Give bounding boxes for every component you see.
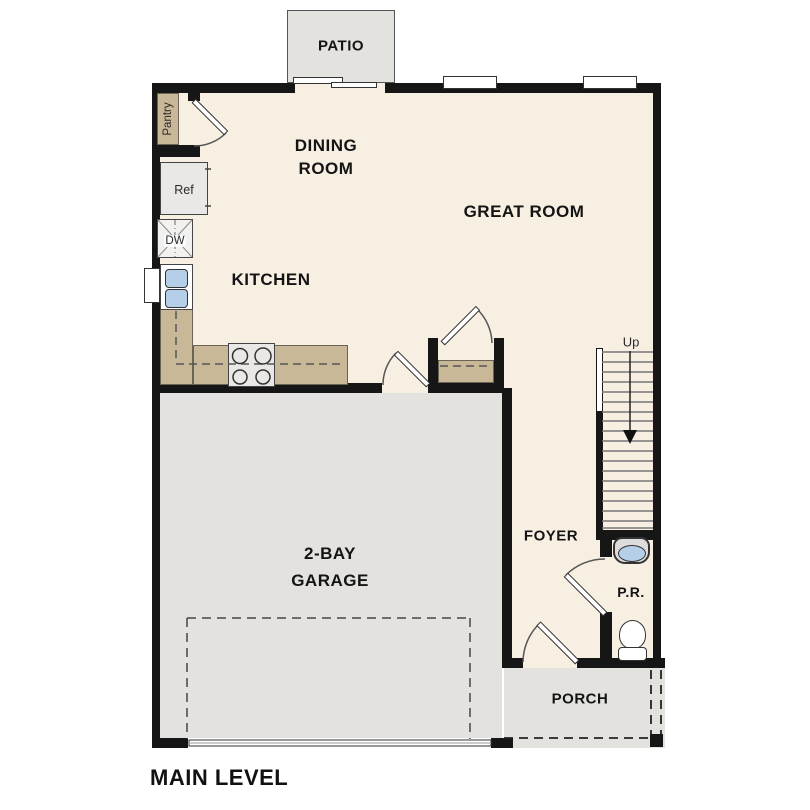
garage-clearance-dashes: [187, 618, 470, 739]
room-label-dining-line2: ROOM: [299, 159, 354, 179]
floor-plan: PATIO DINING ROOM GREAT ROOM KITCHEN 2-B…: [0, 0, 810, 810]
fixture-label-refrigerator: Ref: [174, 183, 193, 197]
refrigerator-ticks: [205, 169, 211, 206]
room-label-porch: PORCH: [552, 691, 609, 708]
fixture-label-pantry: Pantry: [162, 102, 174, 135]
room-label-powder-room: P.R.: [617, 584, 644, 600]
floorplan-symbols: [0, 0, 810, 810]
porch-post: [650, 734, 663, 747]
stove-burners: [233, 348, 272, 384]
closet-door: [441, 307, 492, 345]
page-title: MAIN LEVEL: [150, 765, 288, 791]
counter-dashes: [176, 311, 344, 364]
room-label-dining-line1: DINING: [295, 136, 358, 156]
garage-door: [189, 740, 491, 746]
room-label-kitchen: KITCHEN: [231, 270, 310, 290]
powder-room-door: [564, 559, 606, 616]
fixture-label-dishwasher: DW: [164, 235, 185, 247]
room-label-patio: PATIO: [318, 38, 364, 55]
room-label-garage-line1: 2-BAY: [304, 544, 356, 564]
garage-entry-door: [383, 351, 430, 386]
stairs-up-label: Up: [623, 335, 640, 350]
front-door: [523, 622, 579, 664]
room-label-garage-line2: GARAGE: [291, 571, 369, 591]
stair-treads: [602, 352, 653, 528]
room-label-great-room: GREAT ROOM: [464, 202, 585, 222]
up-arrow-head-icon: [623, 430, 637, 444]
pantry-door: [192, 99, 227, 146]
room-label-foyer: FOYER: [524, 528, 578, 545]
